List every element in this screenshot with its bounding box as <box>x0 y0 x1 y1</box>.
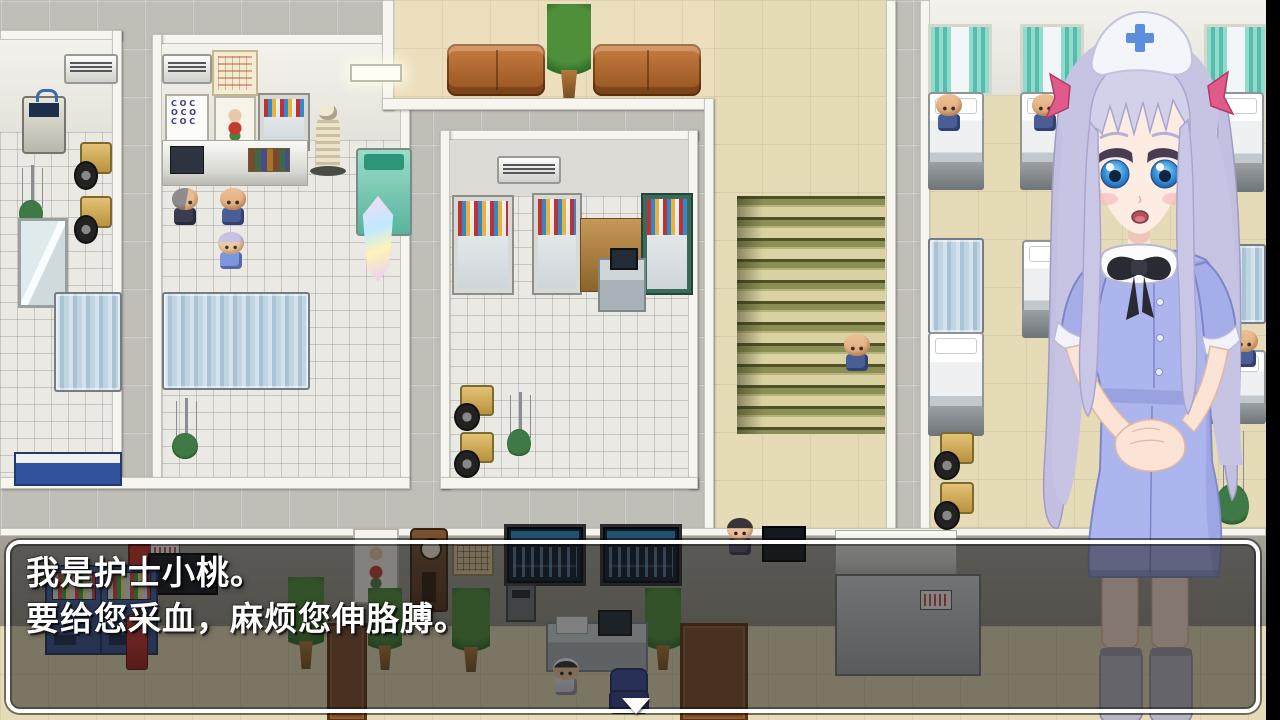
pharmacy-wall <box>450 140 688 196</box>
npc-head <box>844 334 870 356</box>
npc-body <box>222 208 244 225</box>
laptop <box>170 146 204 174</box>
wall-calendar <box>212 50 258 96</box>
room1-top-trim <box>0 30 122 40</box>
air-conditioner <box>162 54 212 84</box>
npc-bald-patient-stairs <box>840 334 874 386</box>
pharmacy-desk <box>598 258 646 312</box>
staircase <box>737 196 885 434</box>
anatomy-skeleton <box>316 116 340 168</box>
game-screen[interactable]: 我是护士小桃。 要给您采血，麻烦您伸胳膊。 <box>0 0 1280 720</box>
corridor-left-trim <box>704 98 714 530</box>
iv-stand-plant <box>165 398 205 460</box>
room2-frame-left <box>152 34 162 478</box>
npc-head <box>220 188 246 210</box>
curtained-window <box>928 24 992 96</box>
npc-doctor <box>168 188 202 240</box>
pharmacy-frame-top <box>440 130 698 140</box>
npc-body <box>174 208 196 225</box>
air-conditioner <box>497 156 561 184</box>
npc-head <box>936 94 962 116</box>
leather-couch <box>447 44 545 96</box>
dialogue-line-1: 我是护士小桃。 <box>26 550 468 596</box>
wheelchair <box>932 432 974 480</box>
corridor-right-trim <box>886 0 896 530</box>
blue-lockers <box>14 452 122 486</box>
pharmacy-frame-left <box>440 130 450 489</box>
leather-couch <box>593 44 701 96</box>
privacy-screen <box>928 238 984 334</box>
medical-machine <box>22 96 66 154</box>
potted-tree <box>547 4 591 98</box>
book-row <box>248 148 290 172</box>
right-letterbox <box>1266 0 1280 720</box>
fluorescent-light <box>350 64 402 82</box>
continue-indicator-icon[interactable] <box>622 698 650 714</box>
iv-stand-plant <box>500 392 538 458</box>
npc-ward-patient <box>932 94 966 146</box>
dialogue-box[interactable]: 我是护士小桃。 要给您采血，麻烦您伸胳膊。 <box>6 540 1260 713</box>
dialogue-line-2: 要给您采血，麻烦您伸胳膊。 <box>26 596 468 642</box>
room2-frame-top <box>152 34 410 44</box>
desk-monitor <box>610 248 638 270</box>
room1-right-trim <box>112 30 122 478</box>
stock-shelf <box>641 193 693 295</box>
privacy-screen <box>54 292 122 392</box>
npc-body <box>220 252 242 269</box>
wheelchair <box>932 482 974 530</box>
pharmacy-bottom-trim <box>440 477 698 489</box>
npc-nurse-sprite <box>214 232 248 284</box>
wheelchair <box>72 196 112 244</box>
pharmacy-frame-right <box>688 130 698 489</box>
nurse-cap <box>1092 12 1193 75</box>
medicine-display <box>532 193 582 295</box>
eye-test-chart <box>165 94 209 146</box>
air-conditioner <box>64 54 118 84</box>
wheelchair <box>452 432 494 478</box>
glass-display-case <box>452 195 514 295</box>
npc-head <box>172 188 198 210</box>
privacy-screen <box>162 292 310 390</box>
waiting-bottom-trim <box>382 98 714 110</box>
npc-body <box>938 114 960 131</box>
hospital-bed <box>928 332 984 436</box>
wheelchair <box>452 385 494 431</box>
npc-head <box>218 232 244 254</box>
waiting-left-trim <box>382 0 394 110</box>
npc-head <box>727 518 753 540</box>
wheelchair <box>72 142 112 190</box>
npc-body <box>846 354 868 371</box>
